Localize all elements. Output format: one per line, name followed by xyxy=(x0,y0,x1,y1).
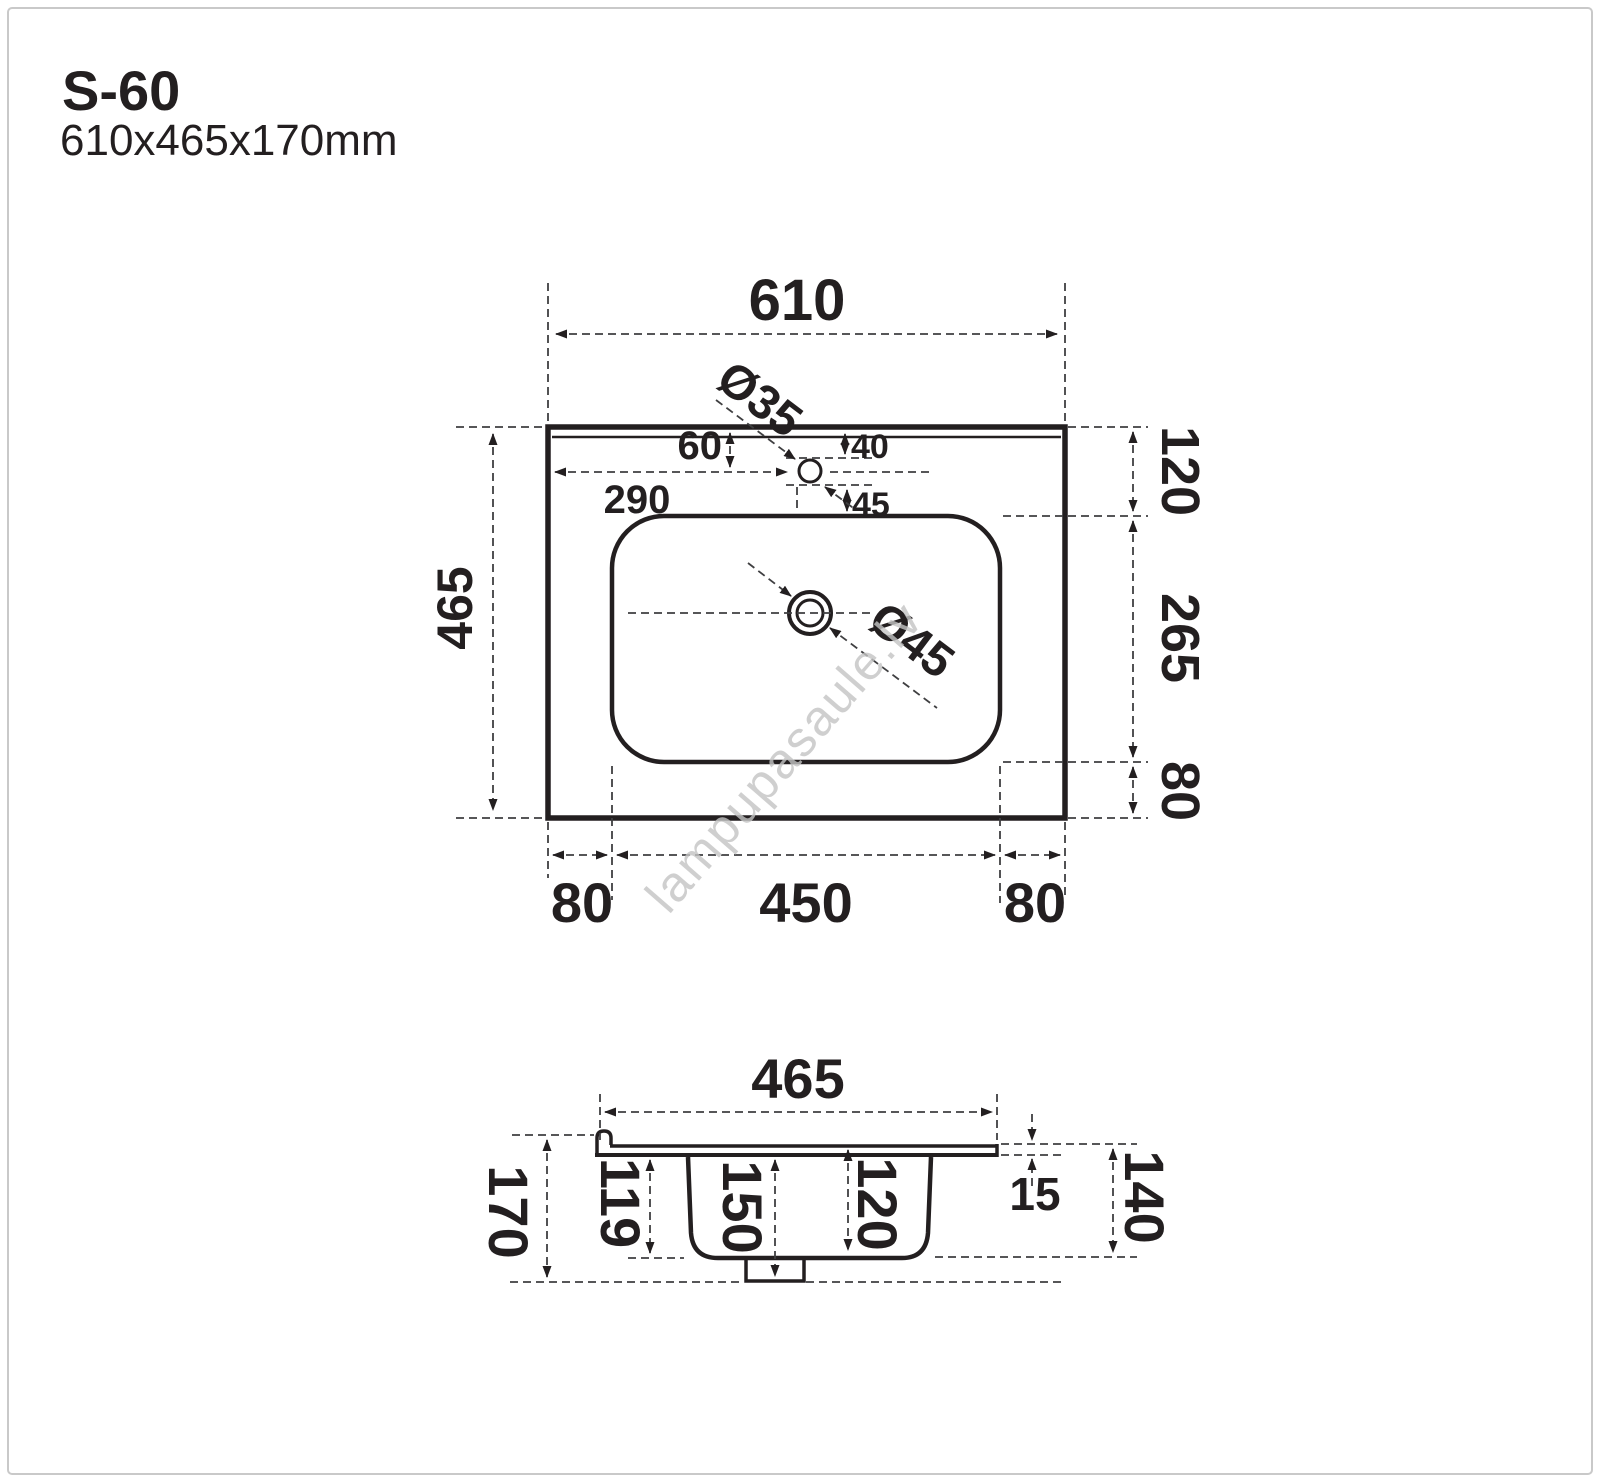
dim-bowl-depth: 120 xyxy=(846,1150,909,1251)
dim-bowl-inner-depth: 119 xyxy=(589,1158,684,1258)
model-title: S-60 xyxy=(62,59,180,122)
dim-label-15: 15 xyxy=(1009,1168,1060,1220)
dim-label-80-bottom-left: 80 xyxy=(551,871,613,934)
dim-label-120-plan: 120 xyxy=(1150,426,1210,516)
dim-label-290: 290 xyxy=(604,478,671,522)
faucet-hole xyxy=(799,460,821,482)
dim-overall-width: 610 xyxy=(548,268,1065,423)
dim-label-140: 140 xyxy=(1113,1150,1176,1243)
side-view: 465 170 119 150 120 xyxy=(477,1047,1176,1282)
top-view: 610 465 120 265 80 xyxy=(427,268,1210,934)
dim-label-80-right-col: 80 xyxy=(1150,761,1210,821)
dim-label-170: 170 xyxy=(477,1165,540,1258)
sink-technical-drawing: S-60 610x465x170mm 610 465 xyxy=(0,0,1600,1482)
dim-label-60: 60 xyxy=(678,424,723,468)
dim-label-40: 40 xyxy=(851,428,889,466)
dim-label-120-side: 120 xyxy=(846,1157,909,1250)
dim-label-465-plan: 465 xyxy=(427,566,483,649)
technical-drawing-page: S-60 610x465x170mm 610 465 xyxy=(0,0,1600,1482)
dim-overall-depth: 465 xyxy=(427,427,544,818)
dim-label-80-bottom-right: 80 xyxy=(1004,871,1066,934)
dim-label-265: 265 xyxy=(1150,593,1210,683)
dim-label-150: 150 xyxy=(711,1160,774,1253)
dim-side-width: 465 xyxy=(600,1047,997,1140)
dim-label-45: 45 xyxy=(852,486,890,524)
model-dimensions: 610x465x170mm xyxy=(60,116,398,165)
dim-label-610: 610 xyxy=(749,268,846,333)
dim-label-465-side: 465 xyxy=(751,1047,844,1110)
dim-label-119: 119 xyxy=(589,1158,652,1248)
dim-label-450: 450 xyxy=(759,871,852,934)
